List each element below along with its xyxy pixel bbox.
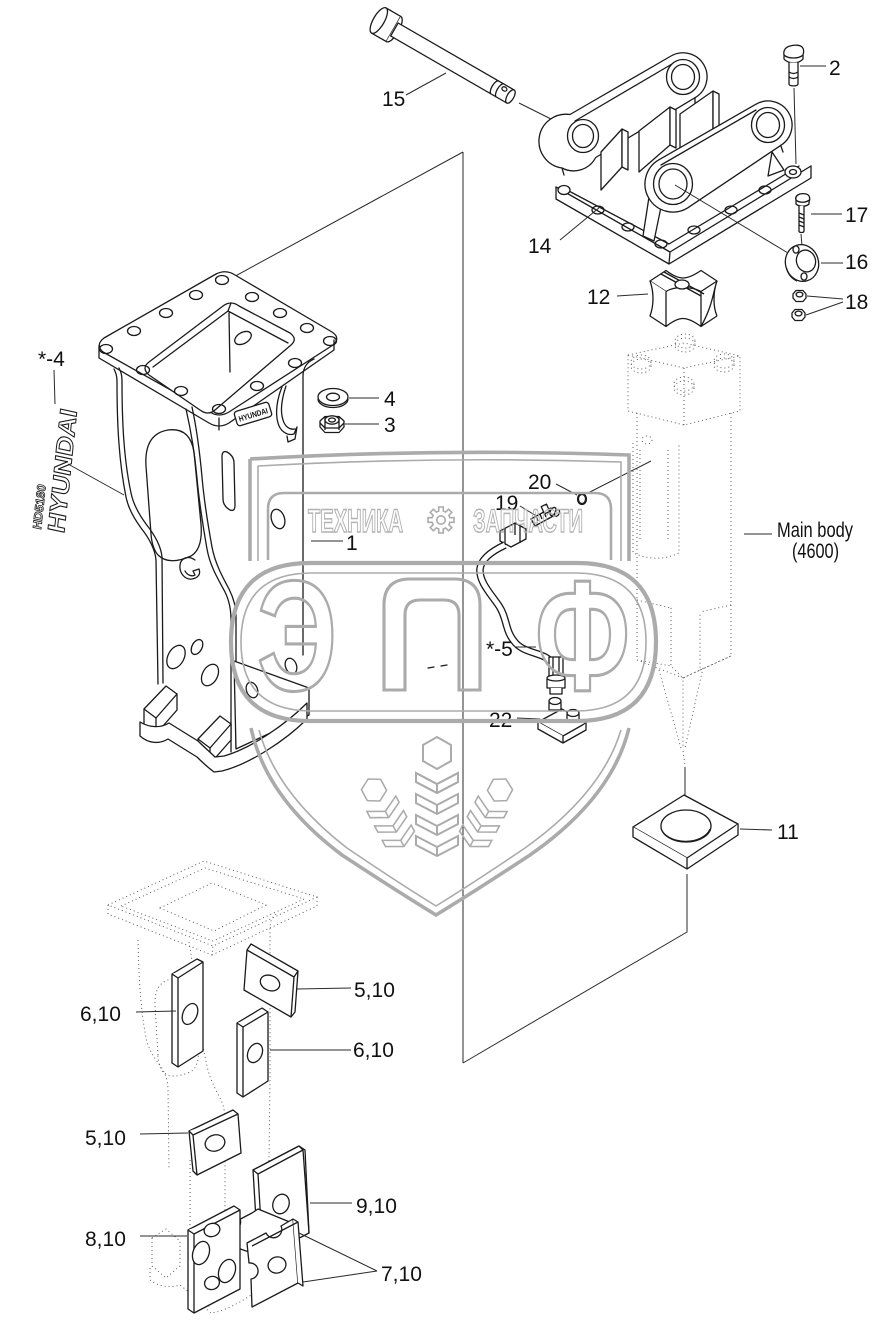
svg-text:(4600): (4600)	[792, 540, 839, 563]
svg-text:6,10: 6,10	[353, 1039, 394, 1062]
svg-text:17: 17	[845, 204, 868, 227]
svg-text:11: 11	[777, 821, 799, 844]
svg-text:*-4: *-4	[38, 348, 65, 371]
svg-text:14: 14	[528, 235, 552, 258]
svg-text:5,10: 5,10	[85, 1127, 126, 1150]
svg-text:7,10: 7,10	[381, 1263, 422, 1286]
svg-text:16: 16	[845, 251, 868, 274]
svg-text:6,10: 6,10	[80, 1003, 121, 1026]
svg-text:Э: Э	[257, 549, 337, 724]
svg-text:4: 4	[384, 388, 396, 411]
svg-text:3: 3	[384, 414, 396, 437]
svg-text:12: 12	[587, 286, 610, 309]
svg-text:Main body: Main body	[777, 519, 853, 542]
svg-text:15: 15	[382, 88, 405, 111]
svg-text:18: 18	[845, 291, 868, 314]
svg-text:2: 2	[829, 57, 841, 80]
svg-text:5,10: 5,10	[354, 979, 395, 1002]
svg-text:*-5: *-5	[486, 638, 513, 661]
svg-text:9,10: 9,10	[356, 1195, 397, 1218]
svg-text:8,10: 8,10	[85, 1228, 126, 1251]
svg-text:ТЕХНИКА: ТЕХНИКА	[308, 503, 403, 539]
svg-text:20: 20	[528, 471, 551, 494]
svg-text:Ф: Ф	[535, 549, 630, 724]
svg-text:ЗАПЧАСТИ: ЗАПЧАСТИ	[473, 503, 583, 539]
